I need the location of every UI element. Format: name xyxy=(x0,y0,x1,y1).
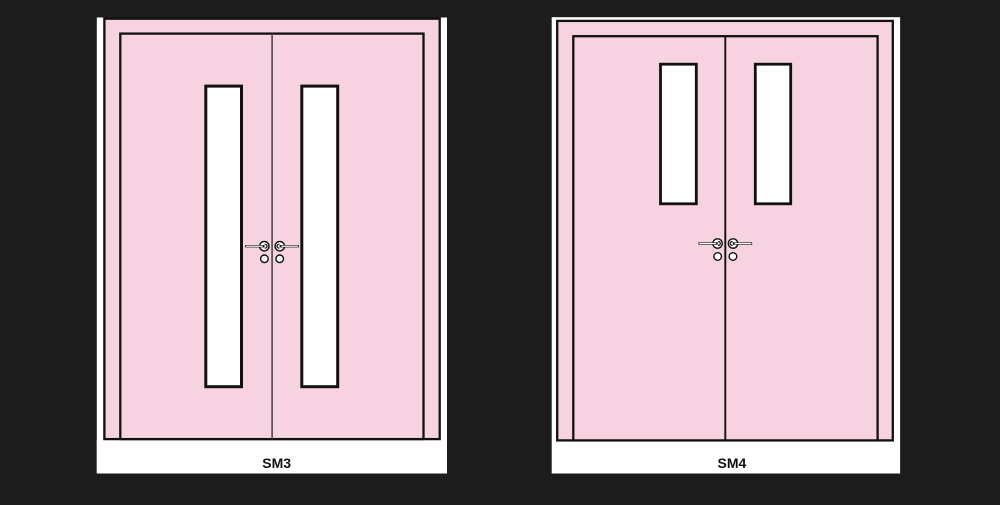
svg-text:SM3: SM3 xyxy=(262,455,291,471)
svg-text:SM4: SM4 xyxy=(718,455,747,471)
